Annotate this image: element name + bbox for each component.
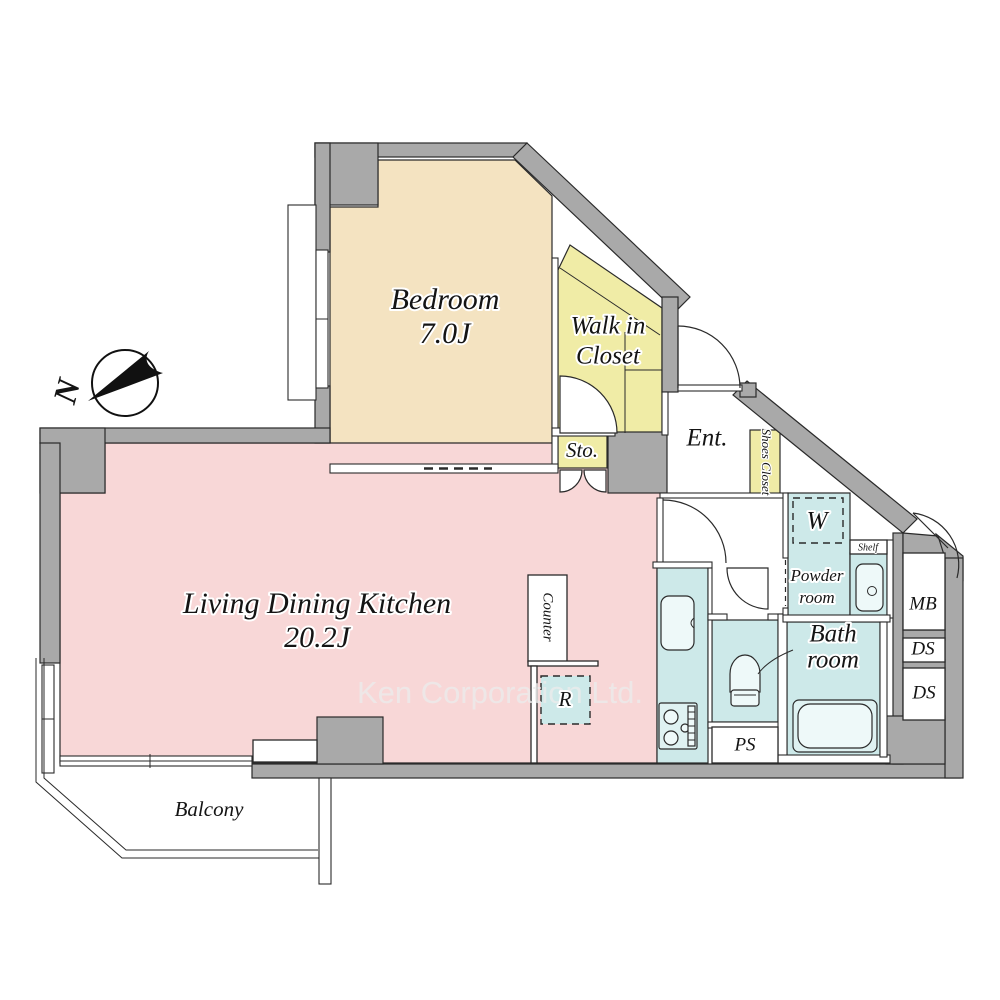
balcony-divider bbox=[319, 778, 331, 884]
ldk-size: 20.2J bbox=[284, 621, 352, 654]
low-window-step bbox=[253, 740, 317, 762]
bedroom-size: 7.0J bbox=[420, 317, 473, 350]
stove-burner bbox=[664, 710, 678, 724]
counter-label: Counter bbox=[540, 592, 556, 641]
shoes-closet-label: Shoes Closet bbox=[759, 429, 774, 496]
stove-burner bbox=[664, 731, 678, 745]
washing-machine-label: W bbox=[807, 508, 830, 535]
toilet-bowl bbox=[730, 655, 760, 692]
floor-plan-canvas: N Ken Corporation Ltd. Bedroom 7.0J Walk… bbox=[0, 0, 1000, 1000]
entrance-label: Ent. bbox=[686, 425, 728, 452]
duct-space-2-label: DS bbox=[911, 682, 936, 703]
bedroom-window-sill bbox=[288, 205, 316, 400]
wic-label-2: Closet bbox=[576, 343, 641, 370]
hall-ldk-door bbox=[663, 500, 726, 563]
powder-room-label-1: Powder bbox=[790, 566, 844, 585]
shelf-label: Shelf bbox=[858, 542, 879, 553]
ldk-label: Living Dining Kitchen bbox=[182, 587, 451, 620]
refrigerator-label: R bbox=[558, 687, 572, 711]
bathroom-label-2: room bbox=[807, 647, 859, 674]
pipe-space-label: PS bbox=[733, 734, 756, 755]
toilet-door bbox=[727, 568, 768, 609]
duct-space-1-label: DS bbox=[910, 638, 935, 659]
meter-box bbox=[903, 553, 945, 630]
balcony-label: Balcony bbox=[175, 797, 244, 821]
north-label: N bbox=[47, 374, 89, 408]
watermark: Ken Corporation Ltd. bbox=[357, 675, 643, 710]
powder-room-label-2: room bbox=[799, 588, 834, 607]
kitchen-sink bbox=[661, 596, 694, 650]
meter-box-label: MB bbox=[908, 593, 937, 614]
front-door bbox=[678, 326, 740, 388]
toilet-base bbox=[731, 690, 759, 706]
compass: N bbox=[47, 350, 163, 416]
bathroom-label-1: Bath bbox=[809, 621, 856, 648]
counter-top bbox=[528, 661, 598, 666]
floor-plan: N Ken Corporation Ltd. Bedroom 7.0J Walk… bbox=[0, 0, 1000, 1000]
wic-label-1: Walk in bbox=[571, 313, 646, 340]
storage-label: Sto. bbox=[566, 438, 598, 462]
bedroom-label: Bedroom bbox=[391, 283, 500, 316]
bathtub-inner bbox=[798, 704, 872, 748]
